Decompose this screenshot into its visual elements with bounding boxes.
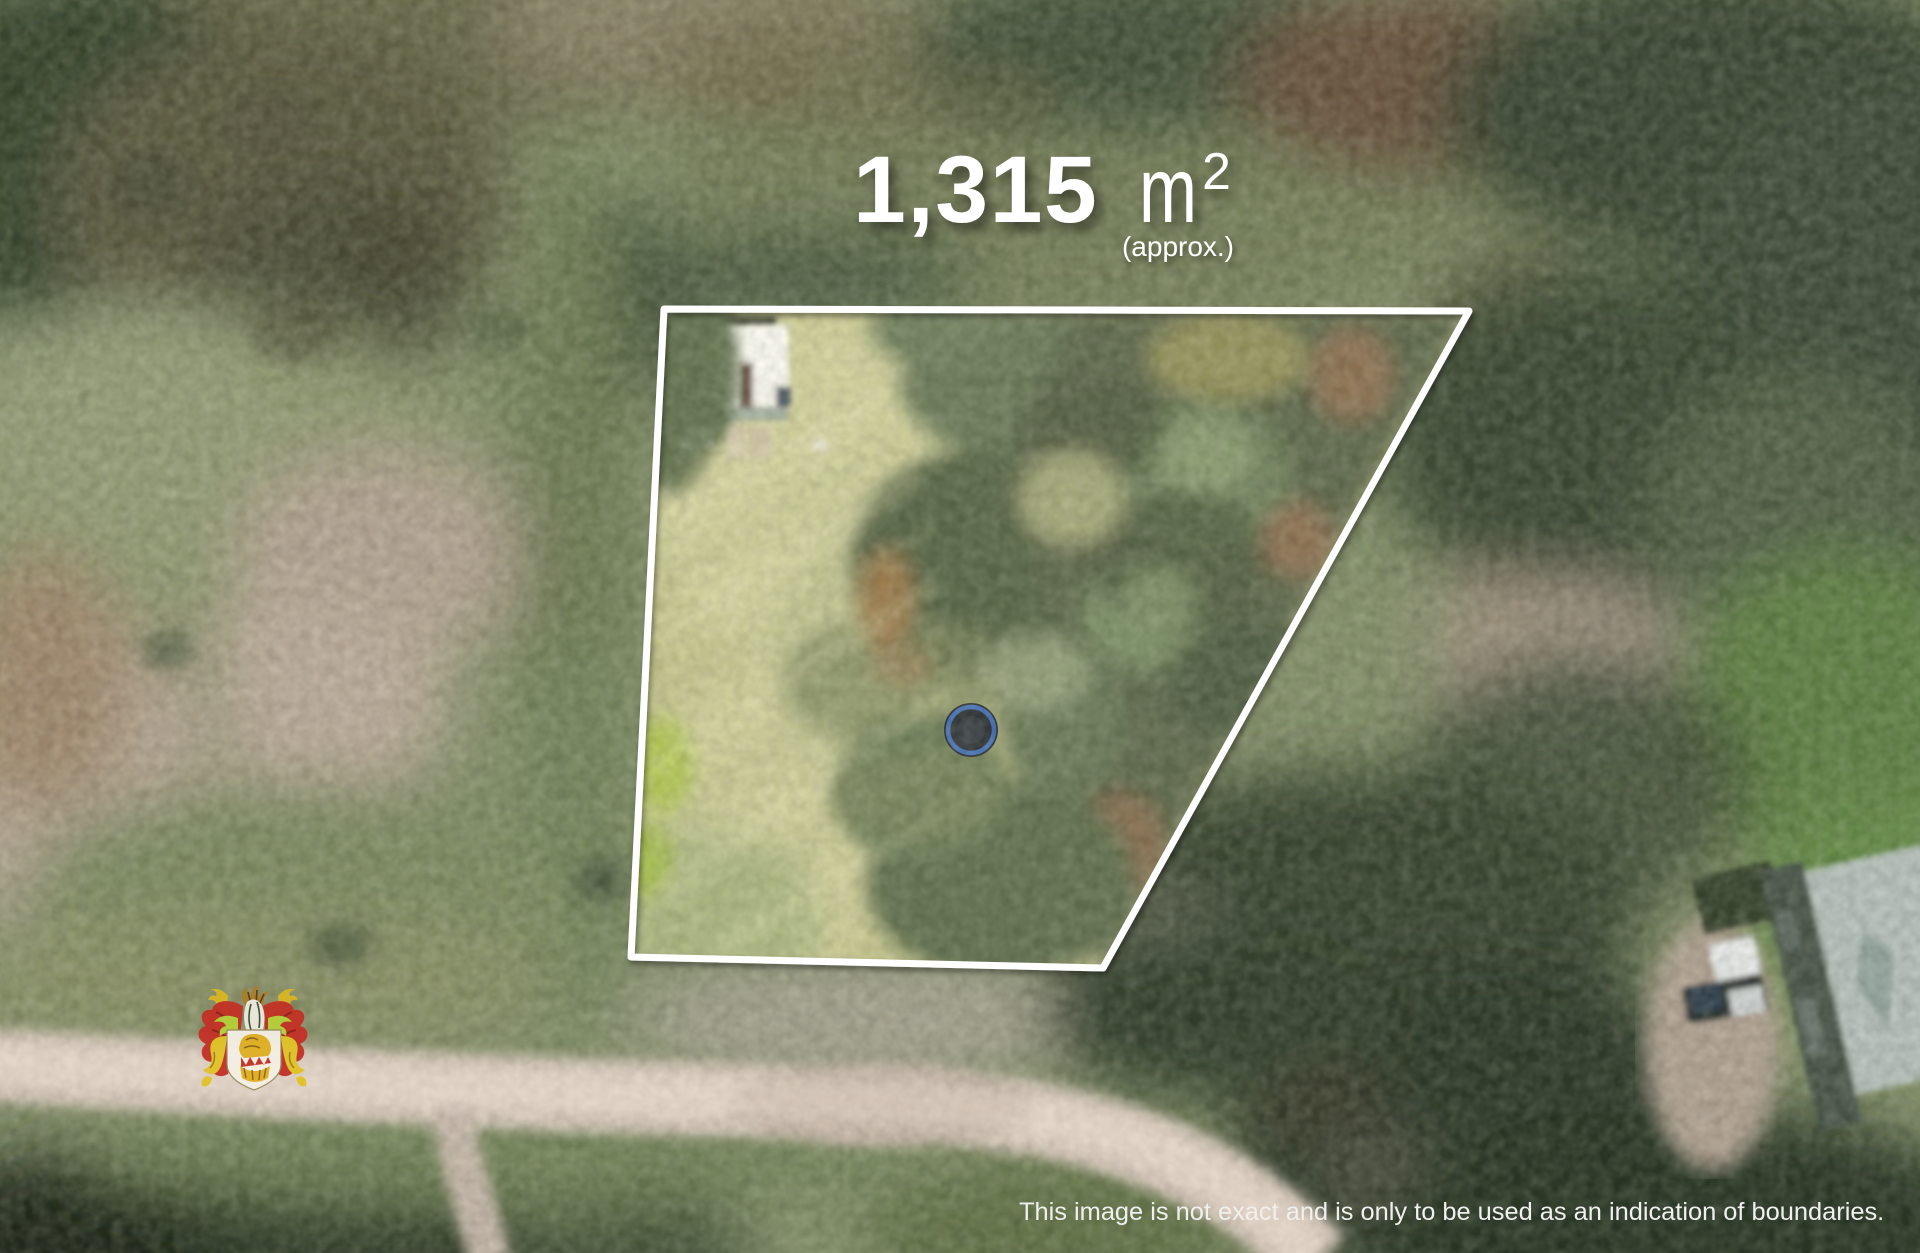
svg-text:m: m [1139, 138, 1197, 242]
svg-text:This image is not exact and is: This image is not exact and is only to b… [1019, 1198, 1884, 1226]
svg-text:(approx.): (approx.) [1122, 231, 1234, 262]
svg-text:2: 2 [1202, 143, 1231, 201]
svg-text:1,315: 1,315 [853, 137, 1098, 243]
